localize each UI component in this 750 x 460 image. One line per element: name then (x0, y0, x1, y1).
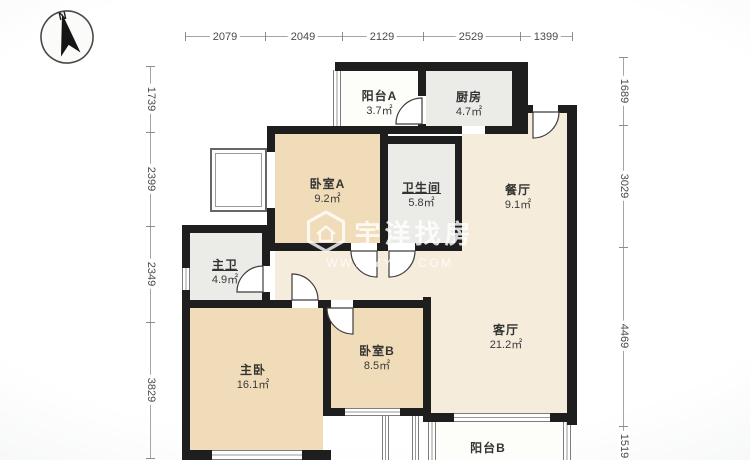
room-name: 阳台A (341, 89, 418, 104)
room-name: 阳台B (438, 441, 538, 456)
dimension-tick (265, 32, 266, 41)
dimension-label-right: 1519 (618, 431, 630, 460)
wall-segment (267, 126, 275, 152)
room-name: 主卧 (198, 363, 308, 378)
wall-segment (353, 300, 423, 308)
window-master-bedroom-bottom (212, 450, 312, 460)
room-label-master-bath: 主卫 4.9㎡ (188, 258, 262, 287)
dimension-label-left: 1739 (145, 84, 157, 114)
dimension-label-top: 2079 (210, 31, 240, 43)
room-area: 21.2㎡ (456, 338, 556, 352)
room-label-balcony-b: 阳台B (438, 441, 538, 456)
wall-segment (400, 408, 431, 416)
dimension-tick (619, 125, 628, 126)
room-label-kitchen: 厨房 4.7㎡ (424, 90, 514, 119)
wall-segment (512, 62, 528, 134)
room-area: 4.9㎡ (188, 273, 262, 287)
room-name: 卫生间 (388, 181, 455, 196)
dimension-tick (146, 458, 155, 459)
dimension-tick (146, 132, 155, 133)
dimension-tick (146, 322, 155, 323)
dimension-tick (146, 66, 155, 67)
window-living-bottom (454, 413, 550, 422)
dimension-label-top: 2529 (456, 31, 486, 43)
railing-left (382, 416, 389, 460)
wall-segment (182, 450, 212, 460)
room-area: 8.5㎡ (331, 359, 423, 373)
dimension-tick (520, 32, 521, 41)
room-name: 卧室A (275, 177, 380, 192)
room-label-bedroom-b: 卧室B 8.5㎡ (331, 344, 423, 373)
wall-segment (262, 233, 270, 266)
room-fill-dining-living (462, 134, 567, 413)
dimension-label-top: 2129 (367, 31, 397, 43)
wall-segment (423, 297, 431, 422)
wall-segment (428, 413, 454, 422)
wall-segment (377, 243, 388, 251)
dimension-label-top: 1399 (531, 31, 561, 43)
dimension-label-top: 2049 (288, 31, 318, 43)
wall-segment (182, 225, 270, 233)
window-bedroom-b-bottom (345, 408, 400, 416)
room-name: 卧室B (331, 344, 423, 359)
room-area: 4.7㎡ (424, 105, 514, 119)
wall-segment (455, 136, 462, 251)
dimension-label-left: 2399 (145, 164, 157, 194)
room-label-balcony-a: 阳台A 3.7㎡ (341, 89, 418, 118)
dimension-label-right: 4469 (618, 321, 630, 351)
wall-segment (323, 408, 345, 416)
wall-segment (302, 450, 331, 460)
room-area: 16.1㎡ (198, 378, 308, 392)
dimension-label-right: 1689 (618, 76, 630, 106)
room-fill-hall (275, 251, 423, 300)
dimension-label-right: 3029 (618, 171, 630, 201)
room-area: 9.1㎡ (468, 198, 568, 212)
room-label-dining: 餐厅 9.1㎡ (468, 183, 568, 212)
room-area: 3.7㎡ (341, 104, 418, 118)
dimension-tick (572, 32, 573, 41)
room-area: 5.8㎡ (388, 196, 455, 210)
dimension-label-left: 2349 (145, 259, 157, 289)
dimension-tick (342, 32, 343, 41)
wall-segment (380, 134, 388, 251)
bay-window-bedroom-a (210, 148, 267, 212)
window-balcony-b-left (428, 422, 436, 460)
room-label-living: 客厅 21.2㎡ (456, 323, 556, 352)
wall-segment (550, 413, 577, 422)
wall-segment (485, 126, 528, 134)
wall-segment (567, 105, 577, 425)
dimension-label-left: 3829 (145, 375, 157, 405)
wall-segment (335, 62, 528, 71)
room-name: 客厅 (456, 323, 556, 338)
wall-segment (380, 136, 462, 144)
room-area: 9.2㎡ (275, 192, 380, 206)
room-name: 主卫 (188, 258, 262, 273)
dimension-tick (619, 426, 628, 427)
wall-segment (526, 105, 533, 113)
dimension-line-right (623, 57, 624, 460)
floorplan-canvas: N (0, 0, 750, 460)
room-label-master-bedroom: 主卧 16.1㎡ (198, 363, 308, 392)
dimension-tick (619, 247, 628, 248)
room-name: 餐厅 (468, 183, 568, 198)
window-balcony-b-right (563, 422, 571, 460)
dimension-tick (423, 32, 424, 41)
wall-segment (182, 300, 292, 308)
dimension-tick (185, 32, 186, 41)
railing-right (412, 416, 419, 460)
dimension-tick (619, 57, 628, 58)
dimension-tick (146, 226, 155, 227)
wall-segment (415, 243, 462, 251)
room-label-bedroom-a: 卧室A 9.2㎡ (275, 177, 380, 206)
wall-segment (182, 290, 190, 460)
wall-segment (323, 300, 331, 416)
room-label-bathroom: 卫生间 5.8㎡ (388, 181, 455, 210)
compass-icon: N (34, 2, 100, 68)
wall-segment (267, 243, 351, 251)
window-balcony-a-left (333, 70, 341, 128)
wall-segment (267, 126, 462, 134)
room-name: 厨房 (424, 90, 514, 105)
